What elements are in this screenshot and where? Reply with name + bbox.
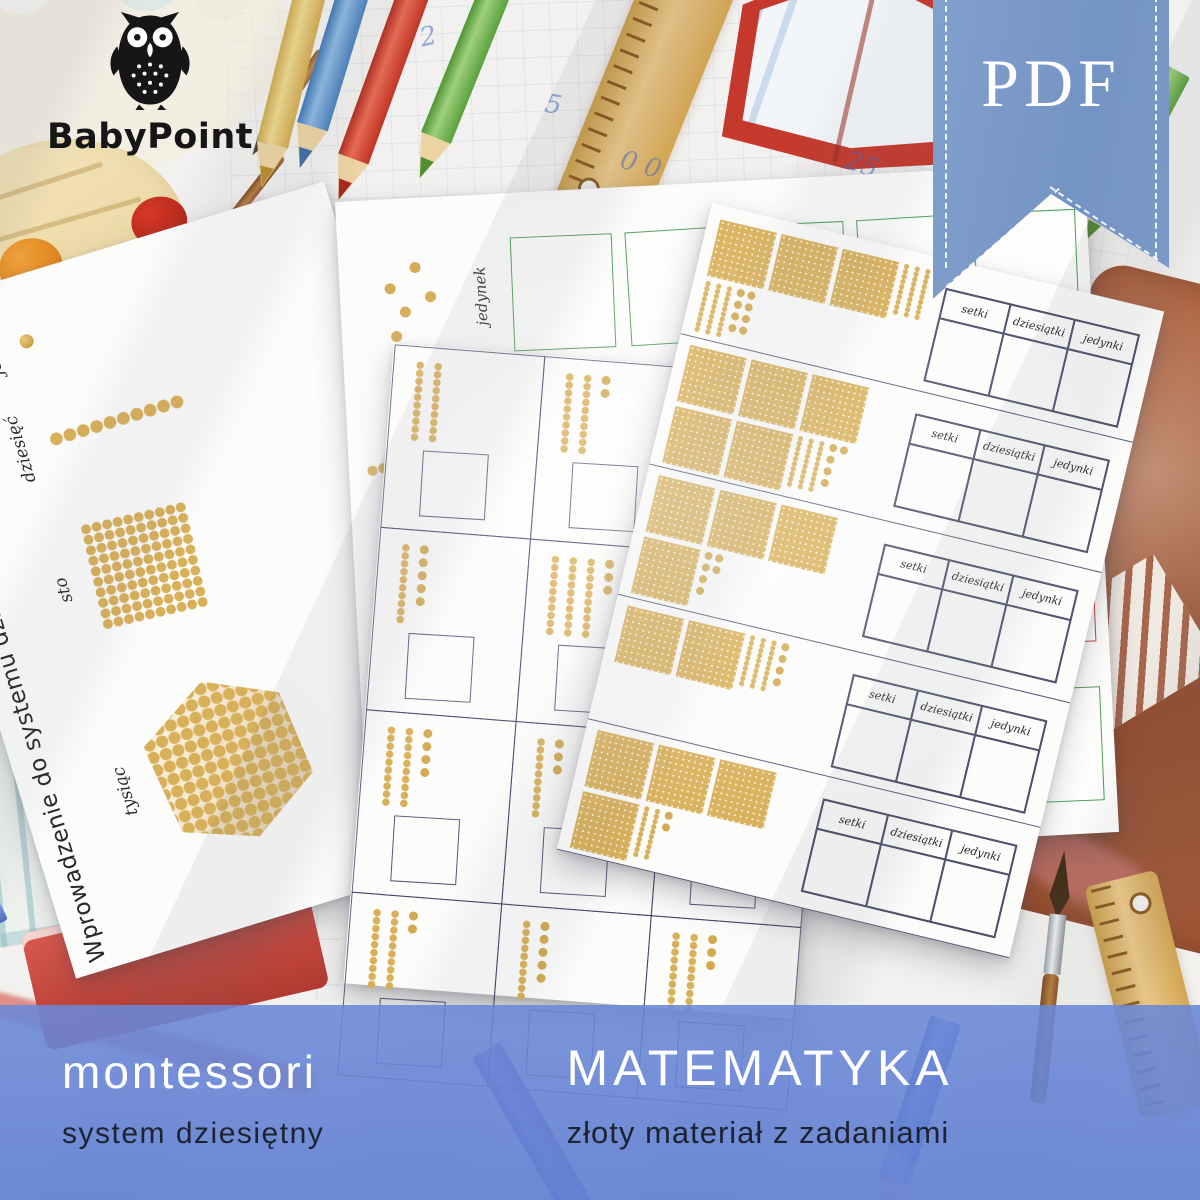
count-cell <box>380 344 545 539</box>
golden-beads-hundred <box>707 489 777 559</box>
golden-beads-units <box>536 921 550 985</box>
golden-beads-hundred <box>738 359 808 429</box>
gold-bead <box>601 375 611 385</box>
gold-bead <box>415 596 425 606</box>
gold-bead <box>409 261 421 273</box>
gold-bead <box>536 973 546 983</box>
golden-beads-ten <box>563 556 577 636</box>
brand-name: BabyPoint <box>30 117 270 157</box>
count-cell <box>366 526 531 721</box>
golden-beads-ten <box>531 737 545 817</box>
golden-beads-ten <box>581 558 595 638</box>
promo-cover: 2 5 0 0 25 Wprowadzenie do systemu dzies… <box>0 0 1200 1200</box>
banner-left-title: montessori <box>62 1045 317 1099</box>
golden-beads-hundred <box>570 791 640 861</box>
golden-beads-ten <box>395 543 409 623</box>
gold-bead <box>419 544 429 554</box>
golden-beads-units <box>597 375 611 439</box>
gold-bead <box>408 911 418 921</box>
table-empty-cell <box>1023 474 1102 552</box>
brand-logo: BabyPoint <box>30 10 270 157</box>
golden-beads-units <box>404 911 418 975</box>
gold-bead <box>698 574 708 584</box>
golden-beads-hundred <box>768 504 838 574</box>
count-cell-beads <box>395 543 518 632</box>
golden-beads-ten <box>559 372 573 452</box>
owl-icon <box>102 10 198 110</box>
banner-right-title: MATEMATYKA <box>560 1039 960 1097</box>
gold-bead <box>418 557 428 567</box>
table-empty-cell <box>992 604 1071 682</box>
gold-bead <box>738 326 748 336</box>
gold-bead <box>417 570 427 580</box>
gold-bead <box>538 947 548 957</box>
gold-bead <box>400 306 412 318</box>
count-cell-beads <box>410 361 533 450</box>
golden-beads-ten <box>399 727 413 807</box>
gold-bead <box>540 921 550 931</box>
gold-bead <box>420 767 430 777</box>
golden-beads-units <box>418 728 432 792</box>
gold-bead <box>661 823 671 833</box>
golden-beads-units <box>820 443 849 492</box>
cutout-bead-art <box>352 251 475 349</box>
gold-bead <box>747 291 757 301</box>
pdf-label: PDF <box>933 44 1169 123</box>
gold-bead <box>421 754 431 764</box>
golden-beads-hundred <box>676 620 746 690</box>
golden-beads-hundred <box>799 374 869 444</box>
gold-bead <box>695 586 705 596</box>
gold-bead <box>733 300 743 310</box>
gold-bead <box>704 551 714 561</box>
golden-beads-ten <box>545 555 559 635</box>
gold-bead <box>600 388 610 398</box>
golden-beads-ten <box>428 362 442 442</box>
gold-bead <box>552 765 562 775</box>
count-cell-beads <box>367 908 490 997</box>
golden-beads-ten <box>666 931 680 1011</box>
gold-bead <box>664 811 674 821</box>
golden-beads-hundred <box>631 536 701 606</box>
golden-beads-units <box>703 934 717 998</box>
bead-label: dziesięć <box>1 408 59 486</box>
bead-label: sto <box>51 569 97 605</box>
gold-bead <box>425 291 437 303</box>
handwritten-doodle: 5 <box>543 89 565 121</box>
gold-bead <box>602 585 612 595</box>
gold-bead <box>707 934 717 944</box>
gold-bead <box>744 303 754 313</box>
answer-box <box>419 450 489 520</box>
golden-beads-ten <box>684 933 698 1013</box>
table-empty-cell <box>960 735 1039 813</box>
gold-bead <box>772 677 782 687</box>
golden-beads-hundred <box>646 475 716 545</box>
golden-beads-hundred <box>707 759 777 829</box>
golden-beads-ten <box>48 393 186 447</box>
gold-bead <box>422 741 432 751</box>
gold-bead <box>416 583 426 593</box>
golden-beads-ten <box>410 361 424 441</box>
gold-bead <box>715 553 725 563</box>
gold-bead <box>407 924 417 934</box>
answer-box <box>568 462 638 532</box>
table-empty-cell <box>930 859 1009 937</box>
gold-bead <box>603 572 613 582</box>
gold-bead <box>539 934 549 944</box>
gold-bead <box>553 752 563 762</box>
table-empty-cell <box>1053 349 1132 427</box>
gold-bead <box>728 323 738 333</box>
golden-beads-units <box>550 739 564 803</box>
answer-box <box>404 632 474 702</box>
gold-bead <box>778 654 788 664</box>
count-cell <box>351 709 516 904</box>
gold-bead <box>820 478 830 488</box>
bottom-banner: montessori system dziesiętny MATEMATYKA … <box>0 1005 1200 1200</box>
golden-beads-ten <box>385 909 399 989</box>
gold-bead <box>741 314 751 324</box>
count-cell-beads <box>381 725 504 814</box>
golden-beads-ten <box>367 908 381 988</box>
golden-beads-thousand <box>130 658 326 861</box>
gold-bead <box>423 728 433 738</box>
golden-beads-ten <box>381 725 395 805</box>
golden-beads-hundred <box>677 344 747 414</box>
gold-bead <box>712 565 722 575</box>
place-value-table: setkidziesiątkijedynki <box>801 798 1018 938</box>
gold-bead <box>701 562 711 572</box>
gold-bead <box>775 665 785 675</box>
golden-beads-units <box>600 559 614 623</box>
gold-bead <box>391 331 403 343</box>
golden-beads-hundred <box>584 730 654 800</box>
golden-beads-hundred <box>646 745 716 815</box>
gold-bead <box>828 443 838 453</box>
golden-beads-hundred <box>723 420 793 490</box>
golden-beads-hundred <box>614 605 684 675</box>
gold-bead <box>730 312 740 322</box>
banner-left-subtitle: system dziesiętny <box>62 1117 324 1151</box>
golden-beads-ten <box>516 920 530 1000</box>
gold-bead <box>554 739 564 749</box>
golden-beads-hundred <box>768 234 838 304</box>
golden-beads-units <box>727 288 756 337</box>
golden-beads-hundred <box>707 219 777 289</box>
gold-bead <box>823 466 833 476</box>
golden-beads-ten <box>577 374 591 454</box>
count-cell-beads <box>516 920 639 1009</box>
gold-bead <box>826 454 836 464</box>
golden-beads-hundred <box>80 501 210 631</box>
cutout-box <box>510 233 617 351</box>
gold-bead <box>705 960 715 970</box>
answer-box <box>390 815 460 885</box>
gold-bead <box>781 642 791 652</box>
handwritten-doodle: 2 <box>417 21 439 54</box>
golden-beads-hundred <box>829 249 899 319</box>
banner-right-subtitle: złoty materiał z zadaniami <box>548 1115 968 1151</box>
gold-bead <box>736 288 746 298</box>
golden-beads-units <box>695 551 724 600</box>
golden-beads-units <box>415 544 429 608</box>
golden-beads-hundred <box>662 406 732 476</box>
gold-bead <box>604 559 614 569</box>
golden-beads-units-scatter <box>379 252 448 347</box>
gold-bead <box>537 960 547 970</box>
gold-bead <box>839 445 849 455</box>
gold-bead <box>384 283 396 295</box>
bead-label: jedynek <box>471 266 506 327</box>
gold-bead <box>706 947 716 957</box>
